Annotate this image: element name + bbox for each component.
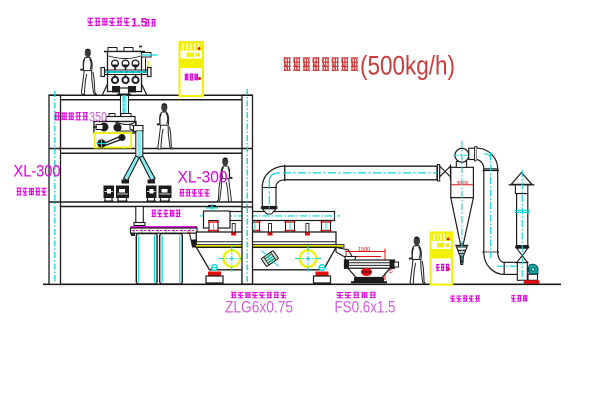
svg-text:XL-300: XL-300 [178,169,228,187]
svg-text:ZLG6x0.75: ZLG6x0.75 [225,299,293,317]
svg-text:FS0.6x1.5: FS0.6x1.5 [335,299,396,317]
svg-text:350: 350 [89,109,107,125]
svg-text:XL-300: XL-300 [14,163,61,181]
svg-text:Φ800: Φ800 [457,180,469,186]
svg-text:1500: 1500 [358,247,370,253]
svg-text:(500kg/h): (500kg/h) [360,51,455,81]
